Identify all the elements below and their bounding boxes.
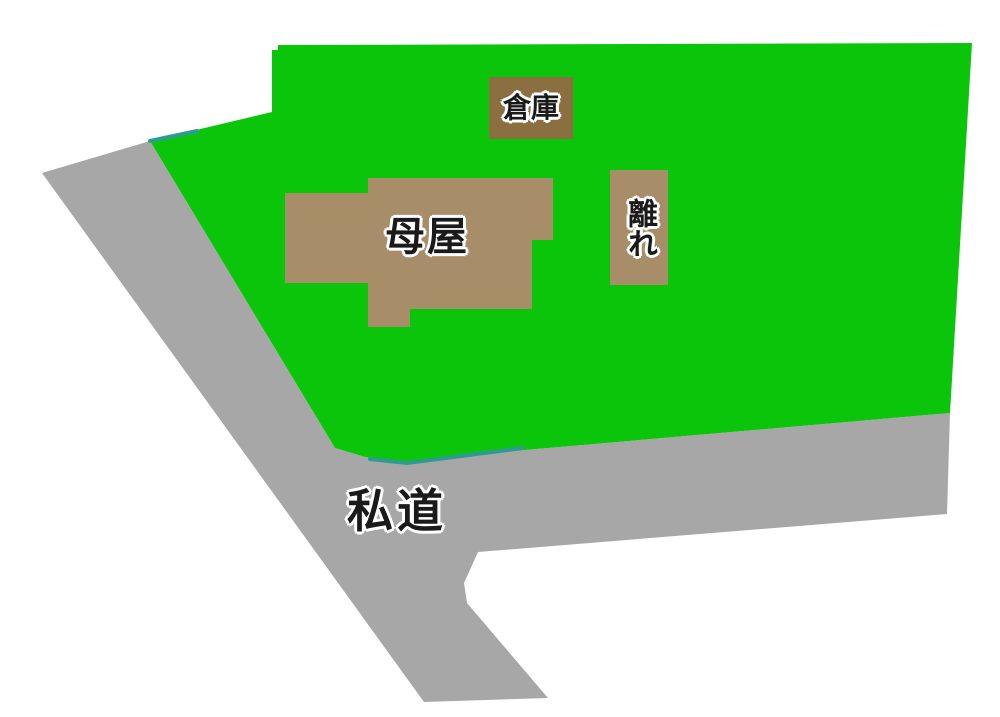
main-house-label: 母屋 [352,212,502,262]
annex-label: 離れ [610,170,668,285]
private-road-label: 私道 [317,483,477,539]
site-plan-diagram: 倉庫 母屋 離れ 私道 [0,0,1000,717]
warehouse-label: 倉庫 [489,77,573,139]
